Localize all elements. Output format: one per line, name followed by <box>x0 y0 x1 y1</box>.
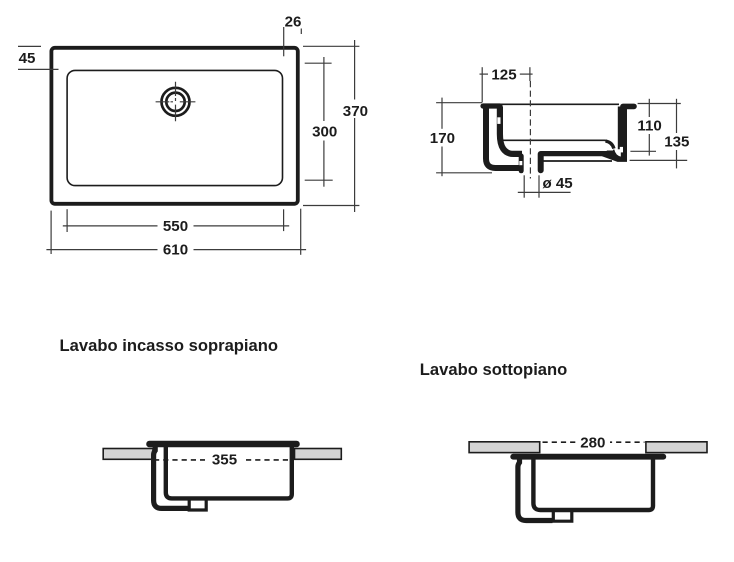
svg-text:135: 135 <box>664 134 689 151</box>
svg-text:ø 45: ø 45 <box>542 175 572 192</box>
svg-text:26: 26 <box>285 13 302 30</box>
svg-text:170: 170 <box>430 130 455 147</box>
svg-text:45: 45 <box>19 50 36 67</box>
svg-text:370: 370 <box>343 103 368 120</box>
svg-text:280: 280 <box>580 435 605 452</box>
svg-text:610: 610 <box>163 241 188 258</box>
svg-text:550: 550 <box>163 218 188 235</box>
svg-text:Lavabo sottopiano: Lavabo sottopiano <box>420 360 568 379</box>
svg-text:300: 300 <box>312 123 337 140</box>
svg-text:Lavabo incasso soprapiano: Lavabo incasso soprapiano <box>60 336 279 355</box>
svg-text:125: 125 <box>491 67 516 84</box>
svg-text:110: 110 <box>637 118 661 135</box>
svg-text:355: 355 <box>212 451 237 468</box>
